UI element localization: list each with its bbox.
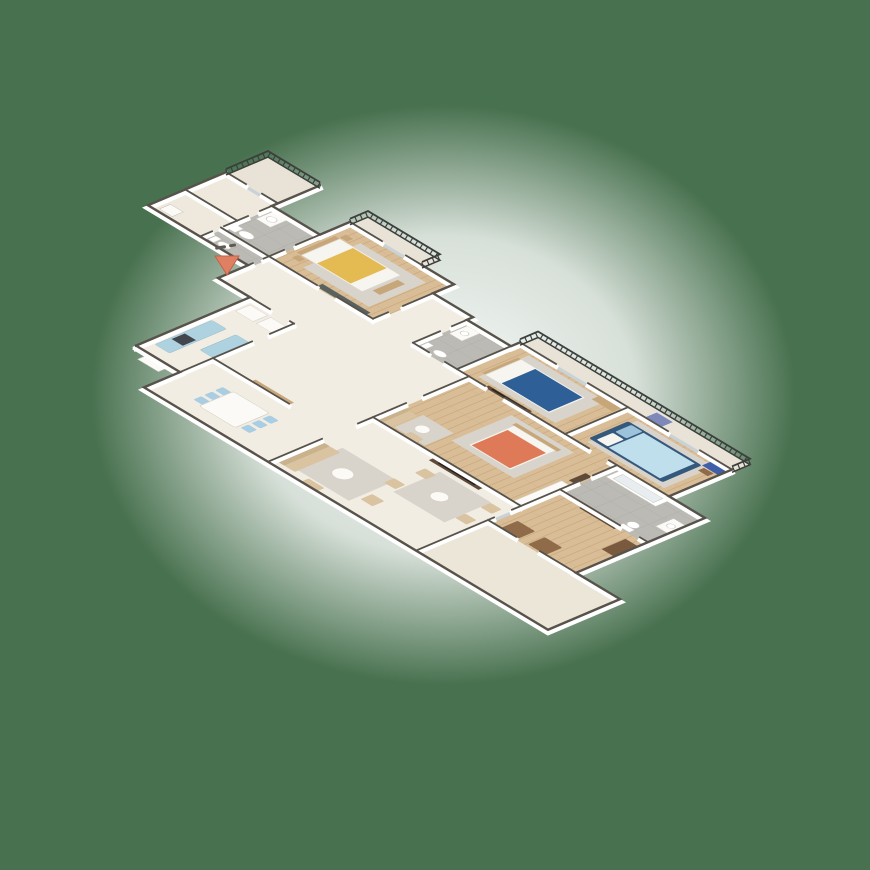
floorplan-3d-render — [0, 0, 870, 870]
